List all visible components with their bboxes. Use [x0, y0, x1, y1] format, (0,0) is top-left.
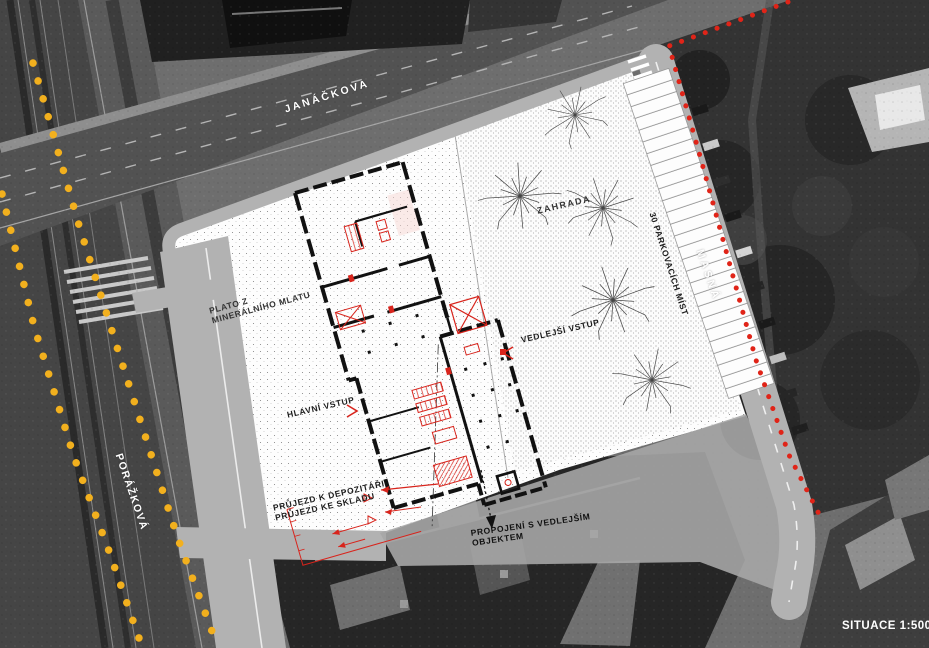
scale-label: SITUACE 1:500 [842, 620, 929, 634]
site-plan-canvas: JANÁČKOVA MASNÁ PORÁŽKOVÁ 30 PARKOVACÍCH… [0, 0, 929, 648]
site-plan-drawing [0, 0, 929, 648]
bottom-access-strip [176, 527, 386, 561]
side-entrance-mark [500, 349, 506, 355]
